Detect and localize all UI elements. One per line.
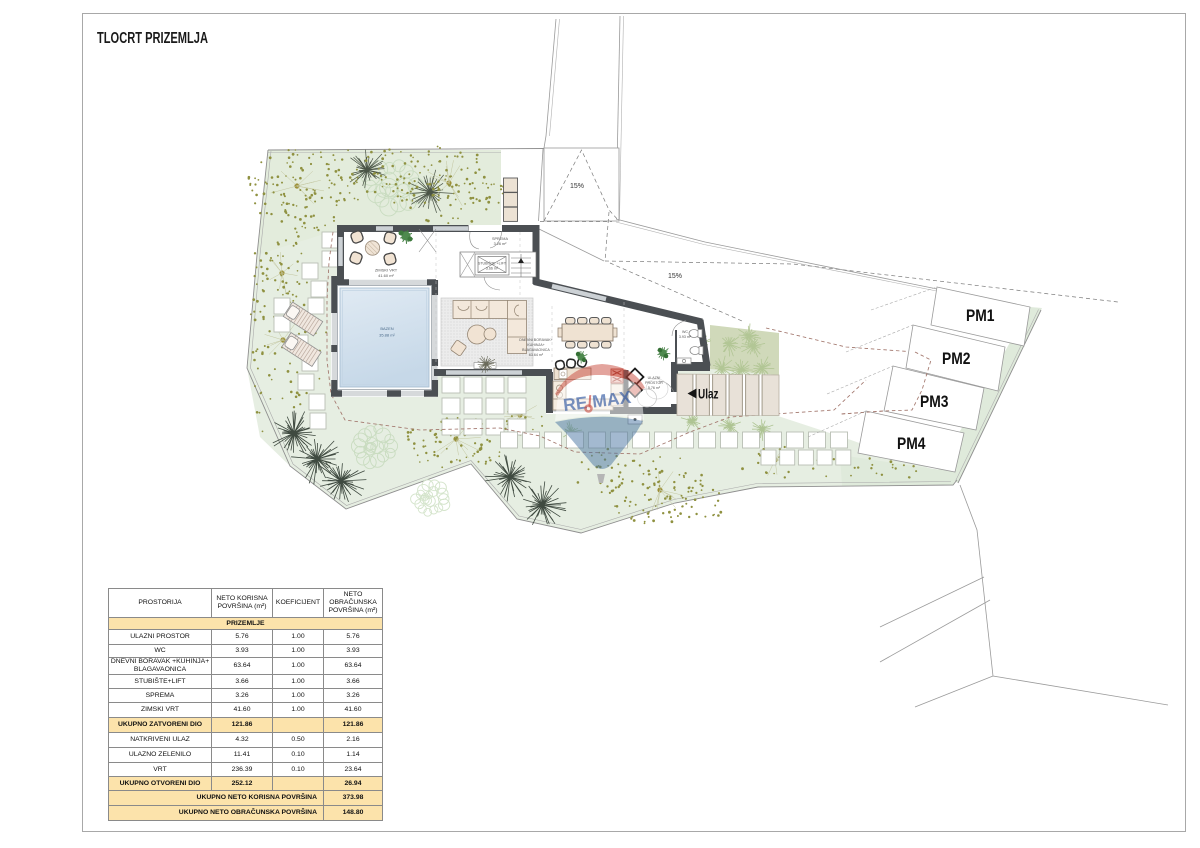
svg-text:KUHINJA+: KUHINJA+ [527, 343, 544, 347]
svg-text:DNEVNI BORAVAK+: DNEVNI BORAVAK+ [519, 338, 553, 342]
svg-text:ULAZNI: ULAZNI [648, 376, 661, 380]
svg-text:Ulaz: Ulaz [698, 387, 719, 402]
svg-text:PM2: PM2 [942, 350, 971, 368]
svg-text:15%: 15% [570, 183, 584, 190]
svg-text:PM3: PM3 [920, 393, 949, 411]
svg-text:BLAGAVAONICA: BLAGAVAONICA [522, 348, 550, 352]
svg-text:PM1: PM1 [966, 307, 995, 325]
svg-text:PM4: PM4 [897, 435, 926, 453]
svg-text:PROSTOR: PROSTOR [645, 381, 663, 385]
svg-text:3.66 m²: 3.66 m² [486, 267, 499, 271]
svg-text:63.64 m²: 63.64 m² [529, 353, 544, 357]
svg-text:ZIMSKI VRT: ZIMSKI VRT [375, 268, 398, 273]
svg-text:3.93 m²: 3.93 m² [679, 335, 692, 339]
svg-text:STUBIŠTE +LIFT: STUBIŠTE +LIFT [478, 261, 507, 266]
svg-text:15%: 15% [668, 273, 682, 280]
svg-text:WC: WC [682, 330, 688, 334]
svg-text:5.76 m²: 5.76 m² [648, 386, 661, 390]
svg-text:BAZEN: BAZEN [380, 326, 393, 331]
svg-text:TLOCRT PRIZEMLJA: TLOCRT PRIZEMLJA [97, 30, 208, 47]
svg-text:35.88 m²: 35.88 m² [379, 333, 395, 338]
svg-text:41.60 m²: 41.60 m² [378, 273, 394, 278]
